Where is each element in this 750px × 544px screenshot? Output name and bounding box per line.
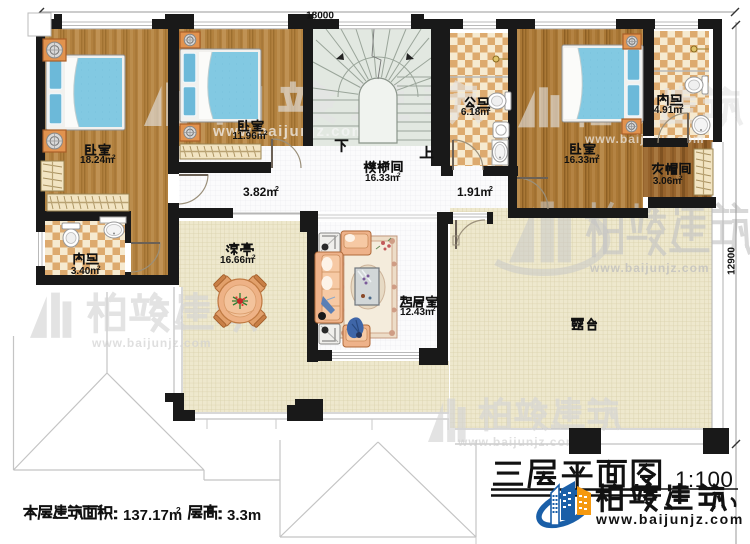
- svg-text:3.06m: 3.06m: [653, 176, 681, 187]
- svg-text:2: 2: [97, 265, 101, 272]
- svg-text:18.24m: 18.24m: [80, 155, 114, 166]
- svg-text:2: 2: [252, 254, 256, 261]
- svg-text:www.baijunjz.com: www.baijunjz.com: [91, 336, 212, 350]
- svg-text:2: 2: [112, 154, 116, 161]
- svg-text:16.66m: 16.66m: [220, 255, 254, 266]
- svg-text:4.91m: 4.91m: [654, 105, 682, 116]
- svg-text:16.33m: 16.33m: [564, 155, 598, 166]
- svg-text:3.40m: 3.40m: [71, 266, 99, 277]
- svg-text:16.33m: 16.33m: [365, 173, 399, 184]
- svg-text:11.96m: 11.96m: [232, 131, 265, 142]
- svg-text:2: 2: [596, 154, 600, 161]
- svg-text:2: 2: [275, 186, 279, 193]
- svg-text:2: 2: [679, 175, 683, 182]
- svg-text:137.17m: 137.17m: [123, 507, 182, 524]
- svg-text:3.3m: 3.3m: [227, 507, 261, 524]
- svg-text:18000: 18000: [306, 11, 334, 22]
- svg-text:www.baijunjz.com: www.baijunjz.com: [595, 511, 744, 527]
- svg-text:2: 2: [680, 104, 684, 111]
- svg-text:6.18m: 6.18m: [461, 107, 489, 118]
- svg-text:1.91m: 1.91m: [457, 185, 491, 199]
- svg-text:2: 2: [489, 186, 493, 193]
- svg-text:12.43m: 12.43m: [400, 307, 434, 318]
- svg-text:2: 2: [176, 505, 181, 515]
- svg-text:2: 2: [487, 106, 491, 113]
- svg-text:12900: 12900: [727, 247, 738, 275]
- svg-text:2: 2: [264, 130, 268, 137]
- svg-text:3.82m: 3.82m: [243, 185, 277, 199]
- svg-text:2: 2: [397, 172, 401, 179]
- svg-text:www.baijunjz.com: www.baijunjz.com: [457, 435, 578, 449]
- svg-text:www.baijunjz.com: www.baijunjz.com: [589, 261, 710, 275]
- svg-text:2: 2: [432, 306, 436, 313]
